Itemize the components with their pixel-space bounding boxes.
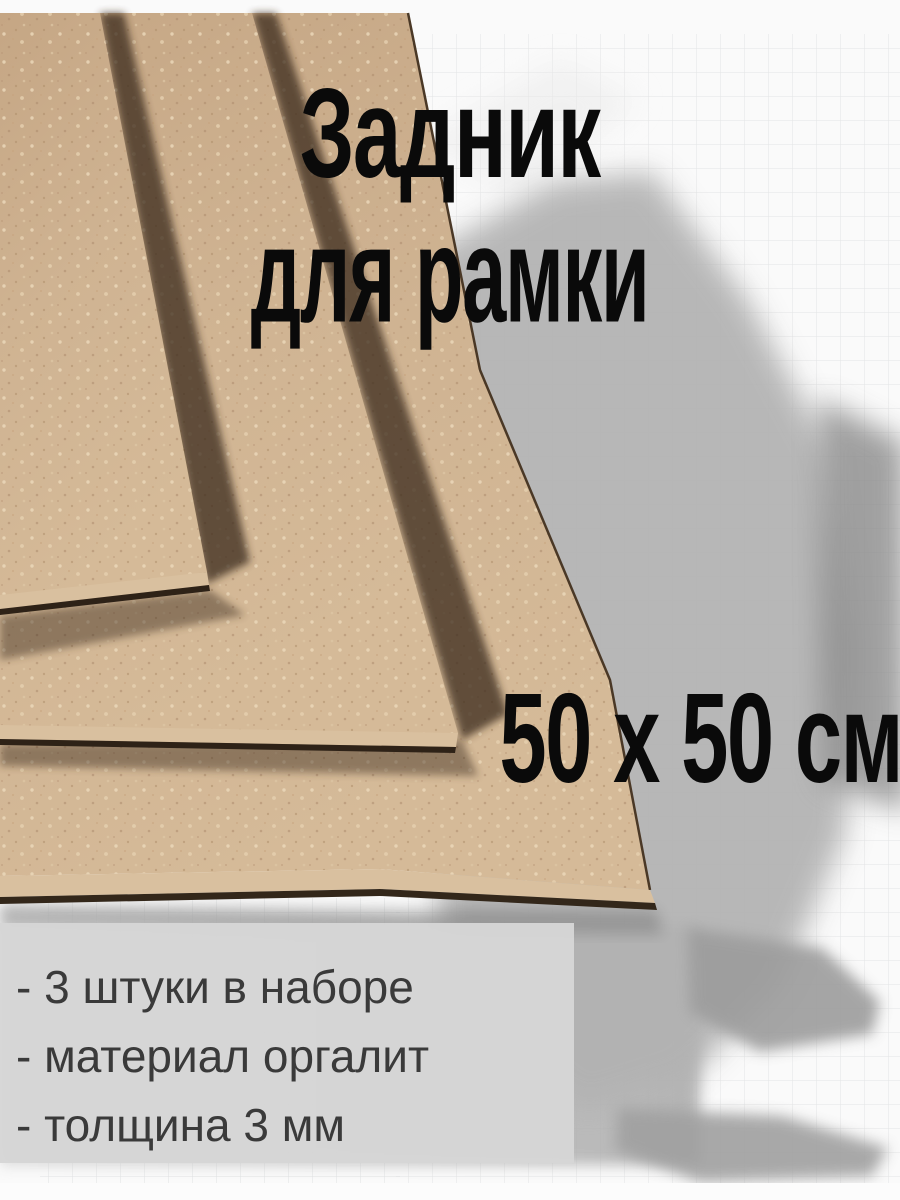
info-list: - 3 штуки в наборе - материал оргалит - … (0, 923, 574, 1160)
product-title: Задник (0, 70, 900, 188)
info-item-thickness: - толщина 3 мм (16, 1091, 574, 1160)
product-subtitle-text: для рамки (251, 207, 649, 343)
size-label-text: 50 х 50 см (499, 675, 900, 802)
info-panel: - 3 штуки в наборе - материал оргалит - … (0, 923, 574, 1163)
product-title-text: Задник (300, 70, 600, 197)
size-label: 50 х 50 см (421, 675, 900, 793)
info-item-material: - материал оргалит (16, 1022, 574, 1091)
product-subtitle: для рамки (0, 207, 900, 333)
product-image: Задник для рамки 50 х 50 см - 3 штуки в … (0, 0, 900, 1200)
info-item-quantity: - 3 штуки в наборе (16, 953, 574, 1022)
bottom-white-strip (0, 1183, 900, 1200)
